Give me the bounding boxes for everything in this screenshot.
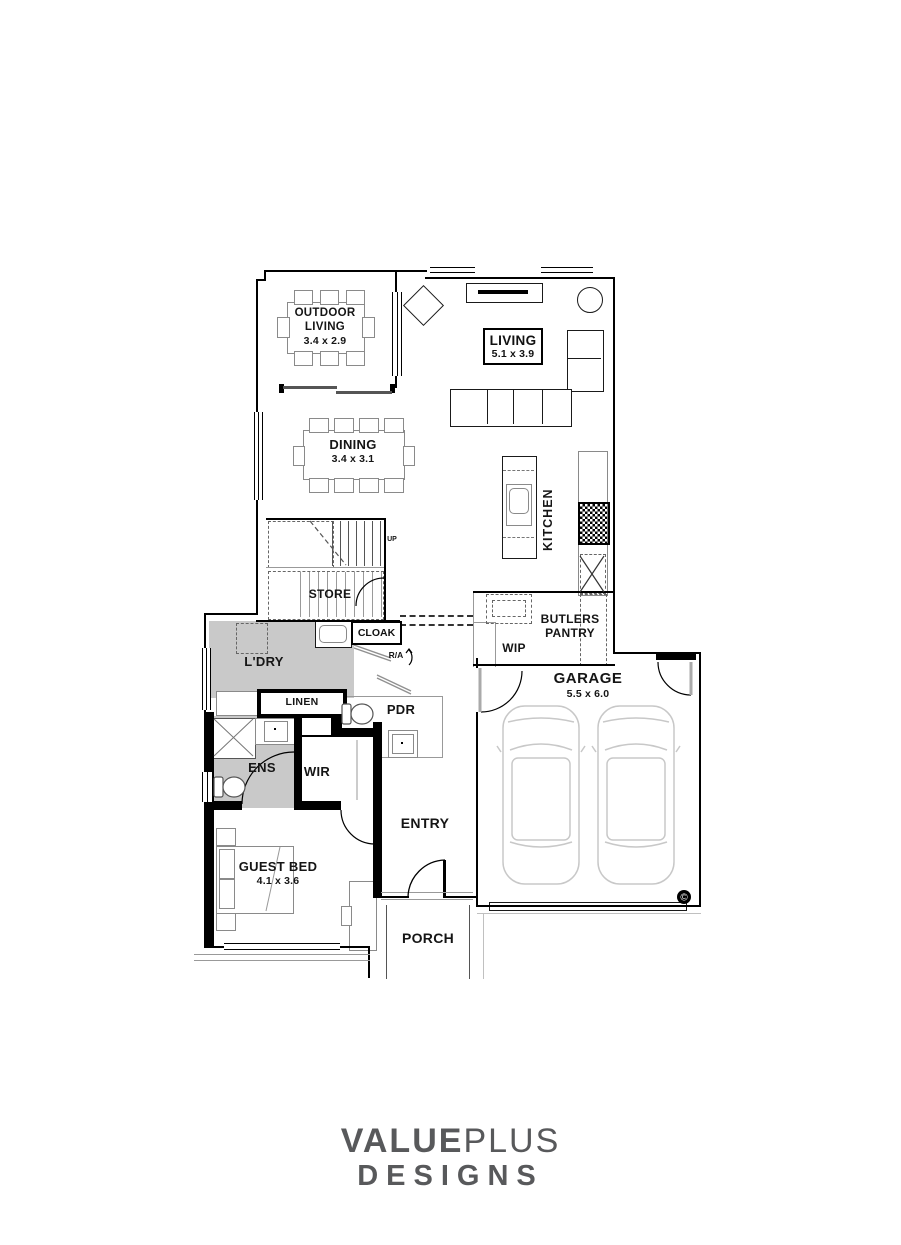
room-label-porch: PORCH: [397, 930, 459, 947]
brand-logo-line1: VALUEPLUS: [0, 1124, 901, 1158]
garage-internal-door-arc: [481, 671, 522, 712]
room-label-butlers-pantry: BUTLERS PANTRY: [537, 612, 603, 641]
terrace-edge: [194, 960, 370, 961]
dining-chair: [384, 478, 404, 493]
room-label-return-air: R/A: [384, 650, 408, 660]
wall: [395, 374, 397, 388]
sofa-cushion-line: [487, 390, 488, 424]
wall: [476, 658, 478, 668]
stair-treads: [332, 521, 384, 566]
laundry-bench: [216, 691, 263, 716]
dining-chair: [359, 478, 379, 493]
pdr-outline: [442, 696, 443, 758]
laundry-tub-bowl: [319, 625, 347, 643]
driveway-edge: [477, 913, 701, 914]
dining-chair: [334, 478, 354, 493]
outdoor-chair: [346, 290, 365, 305]
window: [430, 267, 475, 278]
wall: [368, 946, 370, 978]
room-dims: 5.1 x 3.9: [487, 348, 539, 360]
island-divider: [503, 470, 534, 471]
room-dims: 4.1 x 3.6: [228, 875, 328, 888]
window: [254, 412, 263, 500]
sofa-cushion-line: [568, 358, 601, 359]
outdoor-chair: [320, 351, 339, 366]
desk-chair: [341, 906, 352, 926]
brand-logo-plus: PLUS: [463, 1122, 560, 1160]
pdr-basin-tap: [401, 742, 403, 744]
thick-wall: [304, 801, 341, 810]
sofa-cushion-line: [513, 390, 514, 424]
room-label-laundry: L'DRY: [238, 654, 290, 670]
wall: [266, 518, 386, 520]
stair-mid-line: [266, 567, 385, 568]
bedside-table: [216, 828, 236, 846]
outdoor-chair: [346, 351, 365, 366]
car: [497, 706, 585, 884]
wall: [613, 277, 615, 654]
room-name: GARAGE: [528, 670, 648, 688]
room-name: DINING: [308, 437, 398, 453]
brand-logo-value: VALUE: [341, 1122, 464, 1160]
thick-wall: [294, 716, 302, 808]
pdr-basin-bowl: [392, 734, 414, 754]
dining-chair: [359, 418, 379, 433]
bulkhead-dashed: [400, 624, 473, 626]
room-dims: 3.4 x 2.9: [286, 335, 364, 348]
wall: [264, 270, 427, 272]
room-label-guest-bed: GUEST BED 4.1 x 3.6: [228, 859, 328, 887]
garage-rear-door-arc: [658, 662, 691, 695]
outdoor-chair: [294, 351, 313, 366]
island-divider: [503, 537, 534, 538]
room-label-linen: LINEN: [261, 696, 343, 709]
room-label-outdoor-living: OUTDOOR LIVING 3.4 x 2.9: [286, 307, 364, 347]
ens-basin-tap: [274, 728, 276, 730]
wall: [446, 896, 477, 898]
wall: [299, 735, 375, 737]
sofa-cushion-line: [542, 390, 543, 424]
room-label-wir: WIR: [296, 764, 338, 780]
plan-linework-overlay: ©: [0, 0, 901, 1245]
wip-room-outline: [473, 592, 474, 667]
thick-wall: [204, 712, 214, 948]
tv-screen: [478, 290, 528, 294]
side-table-round: [577, 287, 603, 313]
room-name: GUEST BED: [228, 859, 328, 875]
dining-chair: [293, 446, 305, 466]
room-label-wip: WIP: [493, 641, 535, 655]
room-label-ensuite: ENS: [242, 760, 282, 776]
car: [592, 706, 680, 884]
window: [392, 292, 402, 376]
porch-side: [386, 905, 387, 979]
wall: [476, 712, 478, 907]
dining-chair: [309, 418, 329, 433]
kitchen-sink-bowl: [509, 488, 529, 514]
cavity-slider: [377, 675, 411, 694]
room-label-store: STORE: [300, 587, 360, 601]
bulkhead-dashed: [400, 615, 473, 617]
ens-basin: [264, 721, 288, 742]
wall: [477, 905, 701, 907]
room-label-garage: GARAGE 5.5 x 6.0: [528, 670, 648, 701]
porch-side: [469, 905, 470, 979]
wall: [204, 613, 258, 615]
room-name: OUTDOOR LIVING: [286, 307, 364, 335]
room-name: LIVING: [487, 333, 539, 348]
dining-chair: [309, 478, 329, 493]
window: [202, 648, 211, 710]
sliding-door-panel: [283, 386, 337, 389]
room-label-kitchen: KITCHEN: [541, 484, 557, 556]
entry-threshold: [381, 899, 473, 900]
dining-chair: [384, 418, 404, 433]
sofa-chaise: [567, 330, 604, 392]
outdoor-chair: [294, 290, 313, 305]
wall: [473, 664, 615, 666]
dining-chair: [334, 418, 354, 433]
thick-wall: [373, 810, 382, 898]
sliding-door-panel: [336, 391, 392, 394]
garage-door-lintel: [656, 654, 696, 660]
room-label-living: LIVING 5.1 x 3.9: [483, 328, 543, 365]
outdoor-chair: [320, 290, 339, 305]
thick-wall: [204, 801, 242, 810]
wall: [384, 518, 386, 622]
stairs-direction-label: UP: [384, 536, 400, 544]
room-label-cloak: CLOAK: [351, 621, 402, 645]
pantry-fridge-inner: [492, 600, 526, 617]
laundry-appliance: [236, 623, 268, 654]
window: [541, 267, 593, 278]
sofa: [450, 389, 572, 427]
wall: [699, 652, 701, 907]
window: [202, 772, 213, 802]
room-label-dining: DINING 3.4 x 3.1: [308, 437, 398, 465]
slab-edge: [483, 913, 484, 979]
room-dims: 5.5 x 6.0: [528, 688, 648, 701]
room-label-entry: ENTRY: [395, 815, 455, 832]
room-label-powder: PDR: [380, 702, 422, 718]
entry-threshold: [381, 892, 473, 893]
stair-landing: [268, 521, 334, 568]
brand-logo: VALUEPLUS DESIGNS: [0, 1124, 901, 1191]
armchair: [403, 285, 444, 326]
wall: [395, 270, 397, 294]
cooktop: [578, 502, 610, 545]
floor-plan-canvas: © OUTDOOR LIVING 3.4 x 2.9 LIVING 5.1 x …: [0, 0, 901, 1245]
room-dims: 3.4 x 3.1: [308, 453, 398, 466]
tall-cabinet: [580, 554, 606, 594]
dining-chair: [403, 446, 415, 466]
guest-door-arc: [341, 810, 375, 844]
bedside-table: [216, 912, 236, 931]
pdr-outline: [344, 696, 443, 697]
wall: [473, 591, 615, 593]
thick-wall: [294, 801, 304, 810]
brand-logo-line2: DESIGNS: [0, 1162, 901, 1191]
terrace-edge: [194, 954, 370, 955]
shower: [213, 718, 256, 759]
